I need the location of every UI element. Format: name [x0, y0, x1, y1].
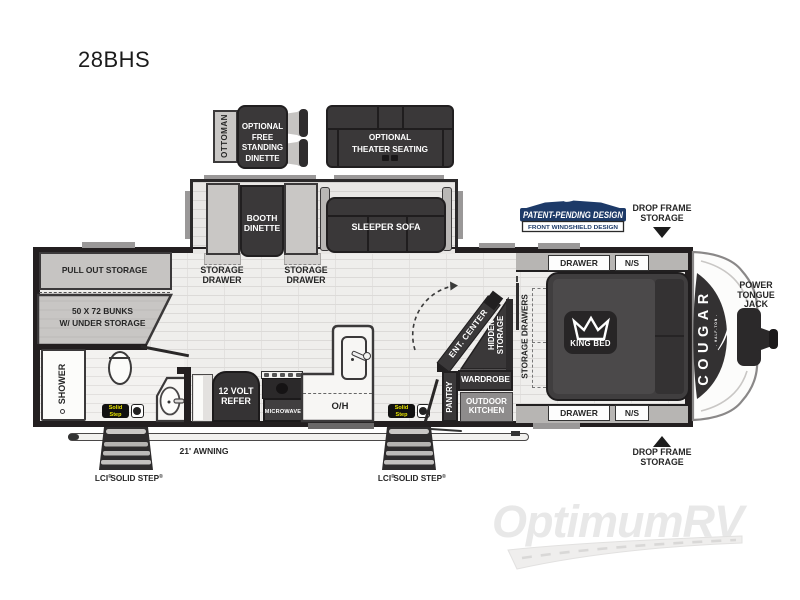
svg-text:COUGAR: COUGAR	[696, 288, 712, 385]
svg-text:PATENT-PENDING DESIGN: PATENT-PENDING DESIGN	[523, 210, 624, 220]
svg-text:FRONT WINDSHIELD DESIGN: FRONT WINDSHIELD DESIGN	[528, 225, 618, 231]
svg-text:- HALF-TON -: - HALF-TON -	[714, 314, 718, 346]
